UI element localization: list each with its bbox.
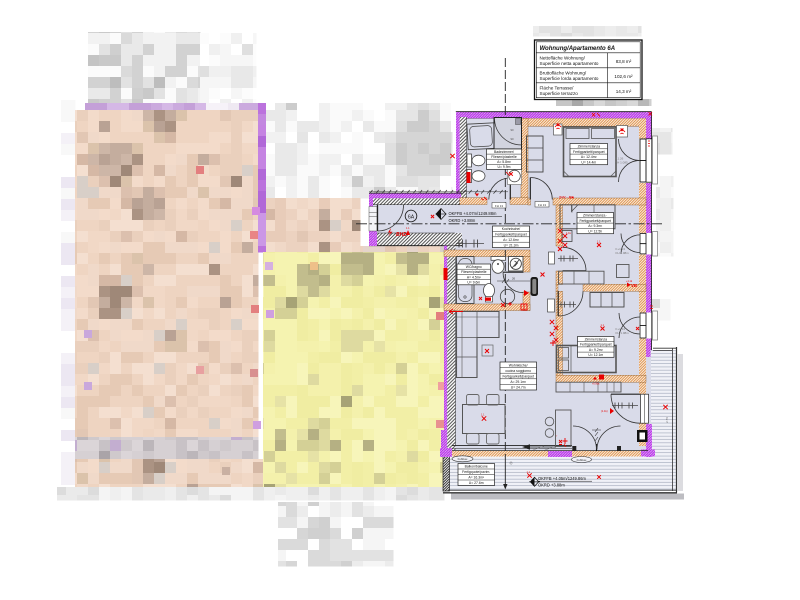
svg-text:A= 4.5m²: A= 4.5m² bbox=[467, 275, 482, 279]
svg-text:A= 16.3m²: A= 16.3m² bbox=[468, 476, 485, 480]
svg-text:2×V↔B■: 2×V↔B■ bbox=[559, 196, 574, 200]
svg-text:Fertigparkett/parquet: Fertigparkett/parquet bbox=[579, 219, 611, 223]
svg-text:A= 12.6m²: A= 12.6m² bbox=[503, 238, 520, 242]
svg-text:1.1k: 1.1k bbox=[566, 231, 572, 235]
svg-text:U= 12.1m: U= 12.1m bbox=[588, 353, 603, 357]
svg-text:Wohnung/Apartamento 6A: Wohnung/Apartamento 6A bbox=[540, 46, 616, 52]
svg-text:Fliesen/piastrelle: Fliesen/piastrelle bbox=[491, 155, 517, 159]
svg-text:Superficie netta apartamento: Superficie netta apartamento bbox=[540, 61, 599, 66]
svg-text:A= 5.8m²: A= 5.8m² bbox=[497, 160, 512, 164]
svg-text:14,3 m²: 14,3 m² bbox=[616, 89, 632, 94]
svg-text:Bruttofläche Wohnung/: Bruttofläche Wohnung/ bbox=[540, 71, 587, 76]
svg-text:Fertigparkett/parquet: Fertigparkett/parquet bbox=[580, 343, 612, 347]
svg-text:cucina soggiorno: cucina soggiorno bbox=[505, 369, 531, 373]
svg-text:A= 9.2m²: A= 9.2m² bbox=[589, 348, 604, 352]
svg-text:VB: VB bbox=[631, 283, 637, 288]
svg-text:1.1: 1.1 bbox=[527, 471, 531, 474]
svg-text:Fliesen/piastrelle: Fliesen/piastrelle bbox=[461, 270, 487, 274]
svg-text:1.1: 1.1 bbox=[597, 241, 601, 244]
svg-text:1.1: 1.1 bbox=[406, 227, 410, 230]
svg-text:2.76: 2.76 bbox=[665, 417, 669, 423]
svg-text:Nettofläche Wohnung/: Nettofläche Wohnung/ bbox=[540, 56, 586, 61]
svg-text:Fläche Terrasse/: Fläche Terrasse/ bbox=[540, 86, 575, 91]
svg-text:Superficie terrazzo: Superficie terrazzo bbox=[540, 91, 579, 96]
svg-text:FH 13: FH 13 bbox=[495, 204, 504, 208]
svg-text:102,6 m²: 102,6 m² bbox=[614, 74, 633, 79]
svg-text:OKFFB +4.07m/1249.88m: OKFFB +4.07m/1249.88m bbox=[449, 211, 497, 216]
svg-text:Fertigquote/pavim.: Fertigquote/pavim. bbox=[462, 470, 490, 474]
svg-text:FH 1.08m: FH 1.08m bbox=[616, 251, 630, 255]
svg-text:90: 90 bbox=[510, 137, 514, 141]
svg-text:U= 21.3m: U= 21.3m bbox=[504, 243, 519, 247]
svg-text:Zimmer/stanza ·: Zimmer/stanza · bbox=[583, 214, 608, 218]
svg-text:Zimmer/stanza: Zimmer/stanza bbox=[578, 145, 601, 149]
svg-text:83,8 m²: 83,8 m² bbox=[616, 59, 632, 64]
svg-text:6A: 6A bbox=[408, 214, 415, 220]
svg-text:Fertigparkett/parquet: Fertigparkett/parquet bbox=[502, 375, 534, 379]
svg-text:OKRD +3.88m: OKRD +3.88m bbox=[538, 483, 565, 488]
svg-text:90: 90 bbox=[510, 128, 514, 132]
svg-text:OKRD +3.88m: OKRD +3.88m bbox=[449, 218, 476, 223]
svg-text:FH 13: FH 13 bbox=[538, 203, 547, 207]
svg-text:Kochnische/: Kochnische/ bbox=[502, 227, 521, 231]
svg-text:OKFFB +4.05m/1249.86m: OKFFB +4.05m/1249.86m bbox=[538, 476, 586, 481]
svg-text:A= 29.1m²: A= 29.1m² bbox=[510, 380, 527, 384]
svg-text:1.1: 1.1 bbox=[481, 414, 485, 417]
svg-text:℗: ℗ bbox=[510, 461, 513, 466]
svg-text:26: 26 bbox=[512, 277, 516, 281]
svg-text:Fußbau: Fußbau bbox=[577, 458, 587, 462]
svg-text:RH 1.085: RH 1.085 bbox=[615, 161, 628, 165]
svg-text:Fertigparkett/parquet: Fertigparkett/parquet bbox=[495, 233, 527, 237]
svg-text:Superficie lorda apartamento: Superficie lorda apartamento bbox=[540, 76, 599, 81]
svg-text:WC/bagno: WC/bagno bbox=[466, 265, 482, 269]
svg-text:FH 1.08m: FH 1.08m bbox=[616, 331, 630, 335]
svg-text:U= 9.6m: U= 9.6m bbox=[467, 281, 480, 285]
svg-text:BHD: BHD bbox=[396, 232, 407, 238]
svg-text:U= 24.7m: U= 24.7m bbox=[511, 386, 526, 390]
svg-text:A= 9.3m²: A= 9.3m² bbox=[588, 224, 603, 228]
svg-text:Wohnküche/: Wohnküche/ bbox=[509, 363, 528, 367]
svg-text:U= 14.4m: U= 14.4m bbox=[581, 160, 596, 164]
svg-text:Fußbau: Fußbau bbox=[458, 457, 468, 461]
svg-text:U= 12.5h: U= 12.5h bbox=[588, 229, 602, 233]
svg-text:Badezimmer/: Badezimmer/ bbox=[494, 150, 514, 154]
svg-text:(1.1k): (1.1k) bbox=[601, 409, 608, 413]
svg-text:1.1: 1.1 bbox=[601, 324, 605, 327]
svg-text:Zimmer/stanza: Zimmer/stanza bbox=[585, 337, 608, 341]
svg-text:Fertigparkett/parquet: Fertigparkett/parquet bbox=[573, 150, 605, 154]
svg-text:+1.1k: +1.1k bbox=[626, 280, 633, 283]
svg-text:U= 27.6m: U= 27.6m bbox=[469, 481, 484, 485]
svg-text:U= 9.9m: U= 9.9m bbox=[498, 165, 511, 169]
svg-text:Balkon/balcone: Balkon/balcone bbox=[465, 465, 488, 469]
svg-text:A= 12.4m²: A= 12.4m² bbox=[581, 155, 598, 159]
svg-text:+0.90a: +0.90a bbox=[592, 383, 600, 386]
